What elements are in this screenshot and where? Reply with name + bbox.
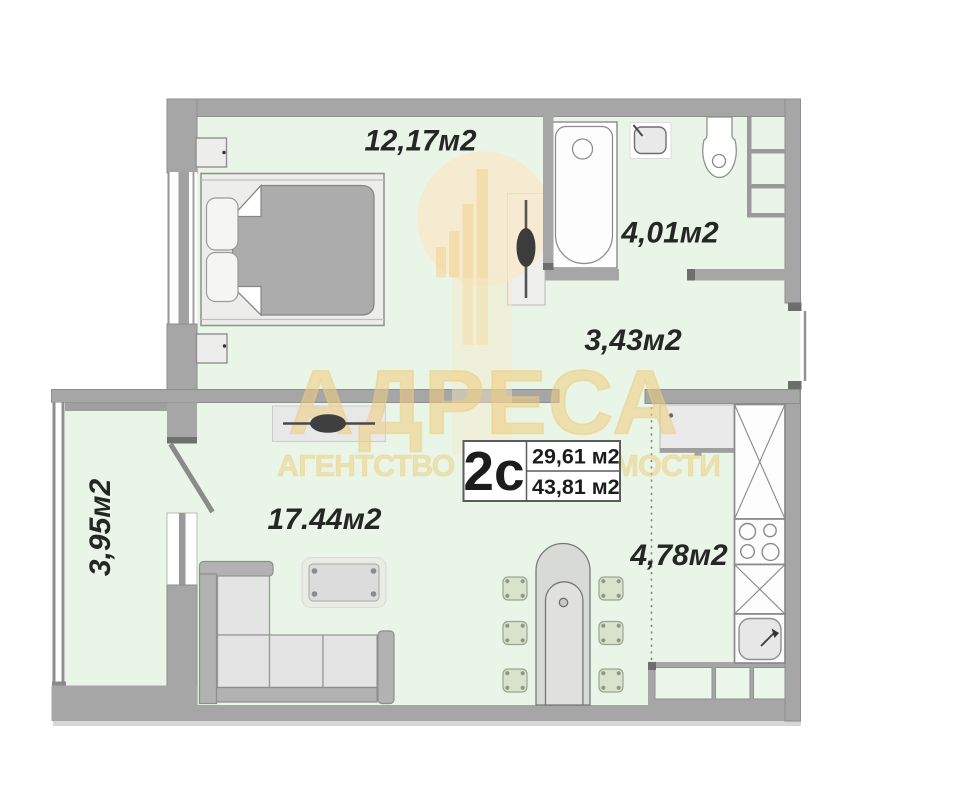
svg-text:4,01м2: 4,01м2	[620, 217, 719, 250]
svg-text:3,43м2: 3,43м2	[584, 324, 682, 357]
svg-text:4,78м2: 4,78м2	[629, 539, 728, 572]
svg-text:17.44м2: 17.44м2	[268, 503, 382, 536]
svg-text:2с: 2с	[463, 440, 524, 502]
svg-text:АДРЕСА: АДРЕСА	[288, 353, 678, 454]
svg-text:29,61 м2: 29,61 м2	[532, 445, 620, 469]
svg-text:12,17м2: 12,17м2	[364, 125, 477, 158]
svg-text:3,95м2: 3,95м2	[84, 479, 117, 577]
svg-text:43,81 м2: 43,81 м2	[532, 475, 620, 499]
